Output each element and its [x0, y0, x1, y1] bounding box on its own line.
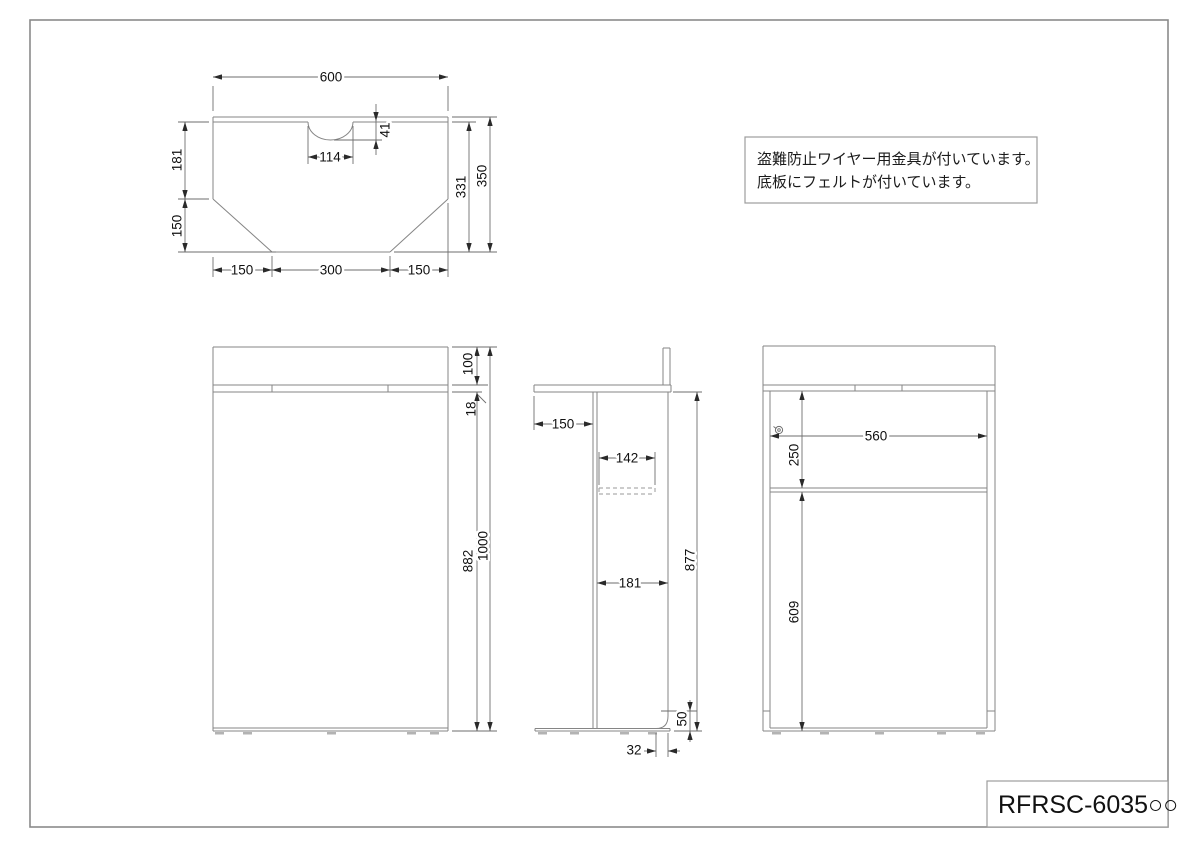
note-box-border	[745, 137, 1037, 203]
felt-pads	[215, 732, 439, 735]
dim-left-lower: 150	[170, 215, 185, 238]
baseboard-cutout	[656, 392, 668, 729]
dim-notch-width: 114	[319, 150, 341, 165]
dim-overhang: 150	[552, 417, 575, 432]
dim-bottom-left: 150	[231, 263, 254, 278]
dim-inner-width: 560	[865, 429, 888, 444]
dim-notch-depth: 41	[378, 122, 393, 137]
note-line-2: 底板にフェルトが付いています。	[757, 173, 980, 191]
note-line-1: 盗難防止ワイヤー用金具が付いています。	[757, 151, 1040, 168]
part-number: RFRSC-6035○○	[998, 791, 1178, 819]
dim-body-height: 882	[461, 550, 476, 573]
dim-shelf-depth: 142	[616, 451, 639, 466]
dim-top-thickness: 18	[464, 401, 479, 416]
hidden-shelf-lines	[599, 488, 655, 494]
dim-left-upper: 181	[170, 149, 185, 172]
side-view: 150 142 181 877 50 32	[534, 348, 702, 758]
back-view: 560 250 609	[763, 346, 995, 735]
dim-side-height: 877	[683, 549, 698, 572]
note-box: 盗難防止ワイヤー用金具が付いています。 底板にフェルトが付いています。	[745, 137, 1040, 203]
technical-drawing: 600 114 41 181 150 150 300 150	[0, 0, 1200, 848]
dim-total-height: 1000	[476, 531, 491, 561]
dim-back-panel-height: 100	[461, 353, 476, 376]
dim-top-width: 600	[320, 70, 343, 85]
dim-body-depth: 181	[619, 576, 642, 591]
dim-bottom-right: 150	[408, 263, 431, 278]
wire-fitting-icon	[774, 426, 783, 433]
dim-cutout-height: 50	[675, 711, 690, 726]
felt-pads	[772, 732, 985, 735]
dim-bottom-center: 300	[320, 263, 343, 278]
felt-pads	[538, 732, 657, 735]
title-block: RFRSC-6035○○	[987, 781, 1178, 827]
cable-notch-arc	[308, 122, 353, 140]
drawing-page: 600 114 41 181 150 150 300 150	[0, 0, 1200, 848]
dim-depth-total: 350	[475, 165, 490, 188]
front-view: 100 18 882 1000	[213, 347, 497, 735]
top-view: 600 114 41 181 150 150 300 150	[170, 70, 498, 278]
dim-cutout-depth: 32	[626, 743, 641, 758]
dim-lower-height: 609	[787, 601, 802, 624]
dim-upper-opening-height: 250	[787, 444, 802, 467]
dim-depth-inner: 331	[454, 176, 469, 199]
